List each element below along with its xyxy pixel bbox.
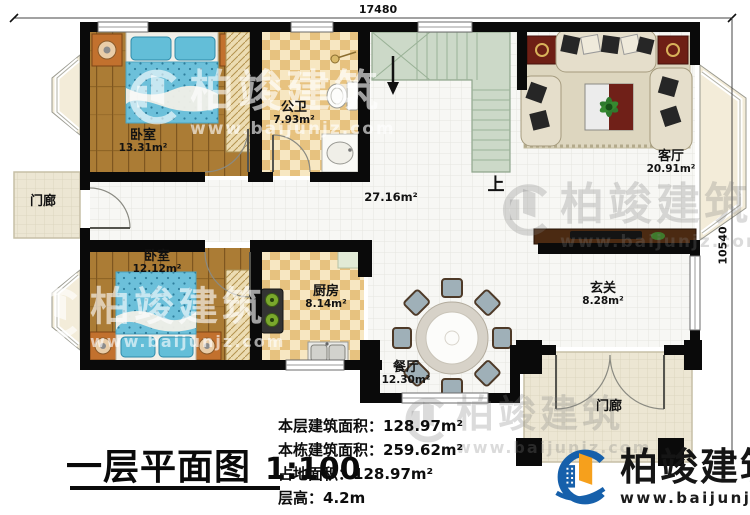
tv: [570, 231, 642, 239]
tv-cabinet: [534, 229, 696, 244]
window: [291, 22, 333, 32]
stat-footprint-area: 占地面积：128.97m²: [278, 462, 463, 486]
wall-corridor-kitchen: [250, 240, 370, 252]
company-logo-icon: [546, 444, 612, 510]
wall-bathroom-corridor: [262, 172, 273, 182]
wardrobe: [226, 32, 250, 152]
stat-storey-height: 层高：4.2m: [278, 486, 463, 510]
wall-kitchen-dining: [360, 340, 380, 403]
pillow: [175, 37, 215, 60]
window: [402, 393, 488, 403]
porch-bottom-label: 门廊: [596, 400, 622, 414]
company-website: www.baijunjz.com: [620, 489, 750, 507]
corridor-floor: [90, 180, 372, 242]
title-underline: [70, 486, 280, 490]
wall-bedroom1-corridor: [80, 172, 205, 182]
wall-bathroom-stairs: [358, 22, 370, 182]
porch-pillar: [516, 438, 542, 466]
dimension-top-label: 17480: [354, 3, 402, 16]
dimension-right-label: 10540: [717, 225, 730, 267]
room-label-entry: 玄关 8.28m²: [582, 282, 623, 308]
wall-living-left: [517, 22, 527, 90]
porch-pillar: [684, 340, 702, 370]
window: [418, 22, 472, 32]
wardrobe: [226, 270, 250, 362]
side-table: [658, 36, 688, 64]
coffee-table: [585, 84, 633, 130]
hall-area-label: 27.16m²: [364, 191, 417, 204]
stove: [261, 289, 283, 333]
wall-top: [80, 22, 700, 32]
wall-tv: [538, 243, 700, 254]
plant: [651, 232, 665, 240]
window: [286, 360, 344, 370]
wall-bathroom-corridor: [310, 172, 370, 182]
living-room-bay-window: [700, 65, 746, 240]
stairs-up-label: 上: [488, 176, 505, 195]
stat-floor-area: 本层建筑面积：128.97m²: [278, 414, 463, 438]
porch-pillar: [516, 340, 542, 374]
pillow: [159, 337, 193, 357]
porch-left-label: 门廊: [30, 195, 56, 209]
wall-right-mid: [690, 240, 700, 256]
bedroom2-bay-window: [52, 270, 80, 350]
company-logo: 柏竣建筑 www.baijunjz.com: [546, 444, 750, 510]
bathroom-sink: [322, 134, 358, 172]
wall-bedroom1-bathroom: [250, 22, 262, 182]
double-bed: [116, 272, 196, 362]
wall-bedroom2-kitchen: [250, 240, 262, 370]
sofa-cushions: [560, 34, 654, 54]
double-bed: [126, 32, 218, 123]
wall-bedroom1-corridor: [248, 172, 262, 182]
building-stats: 本层建筑面积：128.97m² 本栋建筑面积：259.62m² 占地面积：128…: [278, 414, 463, 510]
room-label-bedroom2: 卧室 12.12m²: [133, 250, 182, 276]
pillow: [121, 337, 155, 357]
page-title: 一层平面图: [66, 438, 251, 490]
company-name: 柏竣建筑: [620, 448, 750, 486]
pillow: [131, 37, 171, 60]
wall-dining-bottom: [378, 393, 402, 403]
toilet: [327, 82, 358, 110]
room-label-bathroom: 公卫 7.93m²: [273, 101, 314, 127]
wall-left-upper: [80, 22, 90, 190]
window: [98, 22, 148, 32]
window: [690, 256, 700, 330]
room-label-kitchen: 厨房 8.14m²: [305, 285, 346, 311]
wall-right-upper: [690, 22, 700, 65]
stat-total-area: 本栋建筑面积：259.62m²: [278, 438, 463, 462]
room-label-bedroom1: 卧室 13.31m²: [119, 129, 168, 155]
wall-kitchen-hall: [358, 240, 372, 277]
side-table: [527, 36, 557, 64]
bedroom1-bay-window: [52, 55, 80, 135]
floorplan-page: 卧室 13.31m² 公卫 7.93m² 客厅 20.91m² 卧室 12.12…: [0, 0, 750, 515]
room-label-living: 客厅 20.91m²: [647, 150, 696, 176]
room-label-dining: 餐厅 12.30m²: [382, 361, 431, 387]
